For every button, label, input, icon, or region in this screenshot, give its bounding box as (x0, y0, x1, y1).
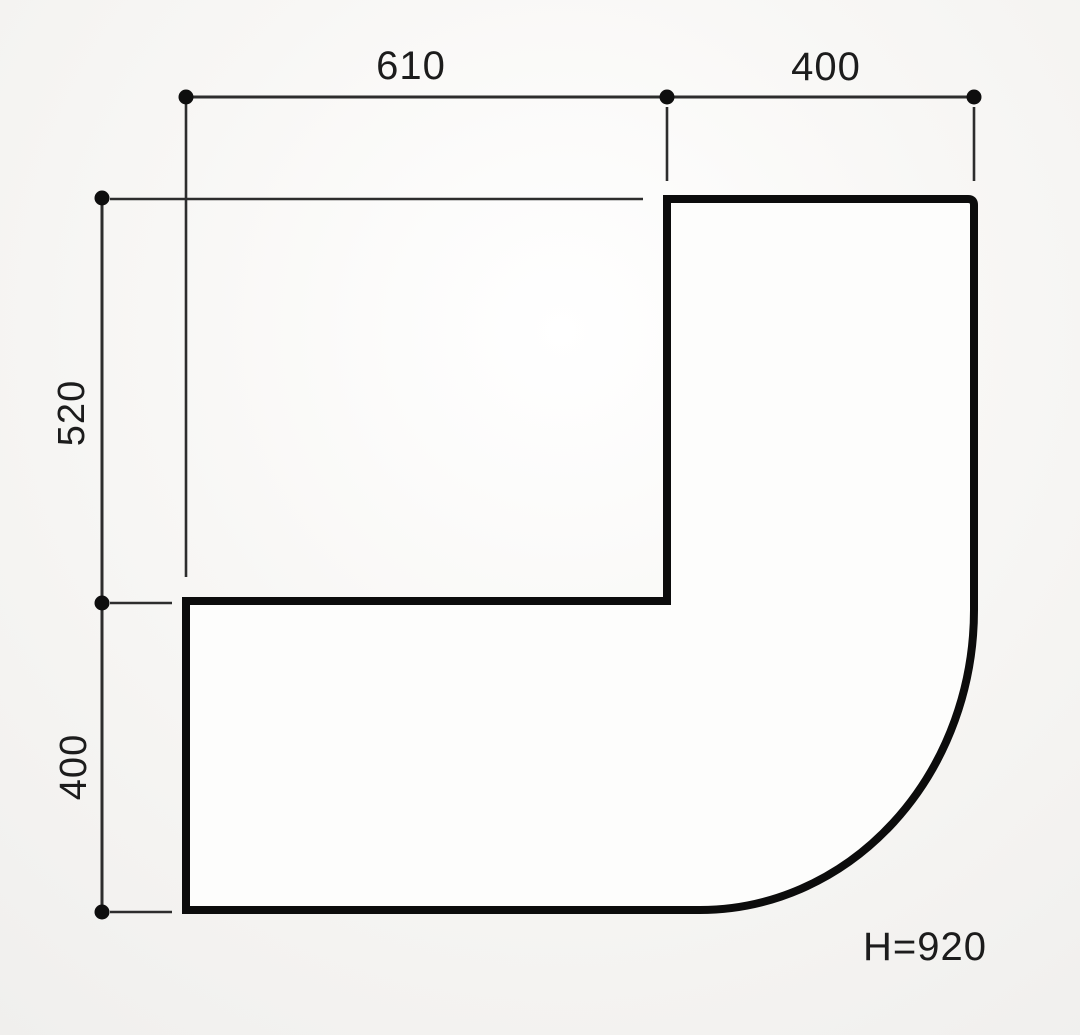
dimension-endpoint-dot (660, 90, 675, 105)
top-dim-label-400: 400 (791, 45, 861, 89)
panel-dimension-drawing: 610 400 520 400 H=920 (0, 0, 1080, 1035)
panel-shape (186, 199, 974, 910)
dimension-endpoint-dot (967, 90, 982, 105)
left-dim-label-520: 520 (51, 380, 93, 446)
dimension-endpoint-dot (95, 905, 110, 920)
drawing-canvas: 610 400 520 400 H=920 (0, 0, 1080, 1035)
dimension-endpoint-dot (95, 191, 110, 206)
top-dim-label-610: 610 (376, 44, 446, 88)
height-annotation: H=920 (863, 925, 987, 969)
left-dim-label-400: 400 (53, 734, 95, 800)
panel-outline (186, 199, 974, 910)
dimension-endpoint-dot (95, 596, 110, 611)
dimension-endpoint-dot (179, 90, 194, 105)
